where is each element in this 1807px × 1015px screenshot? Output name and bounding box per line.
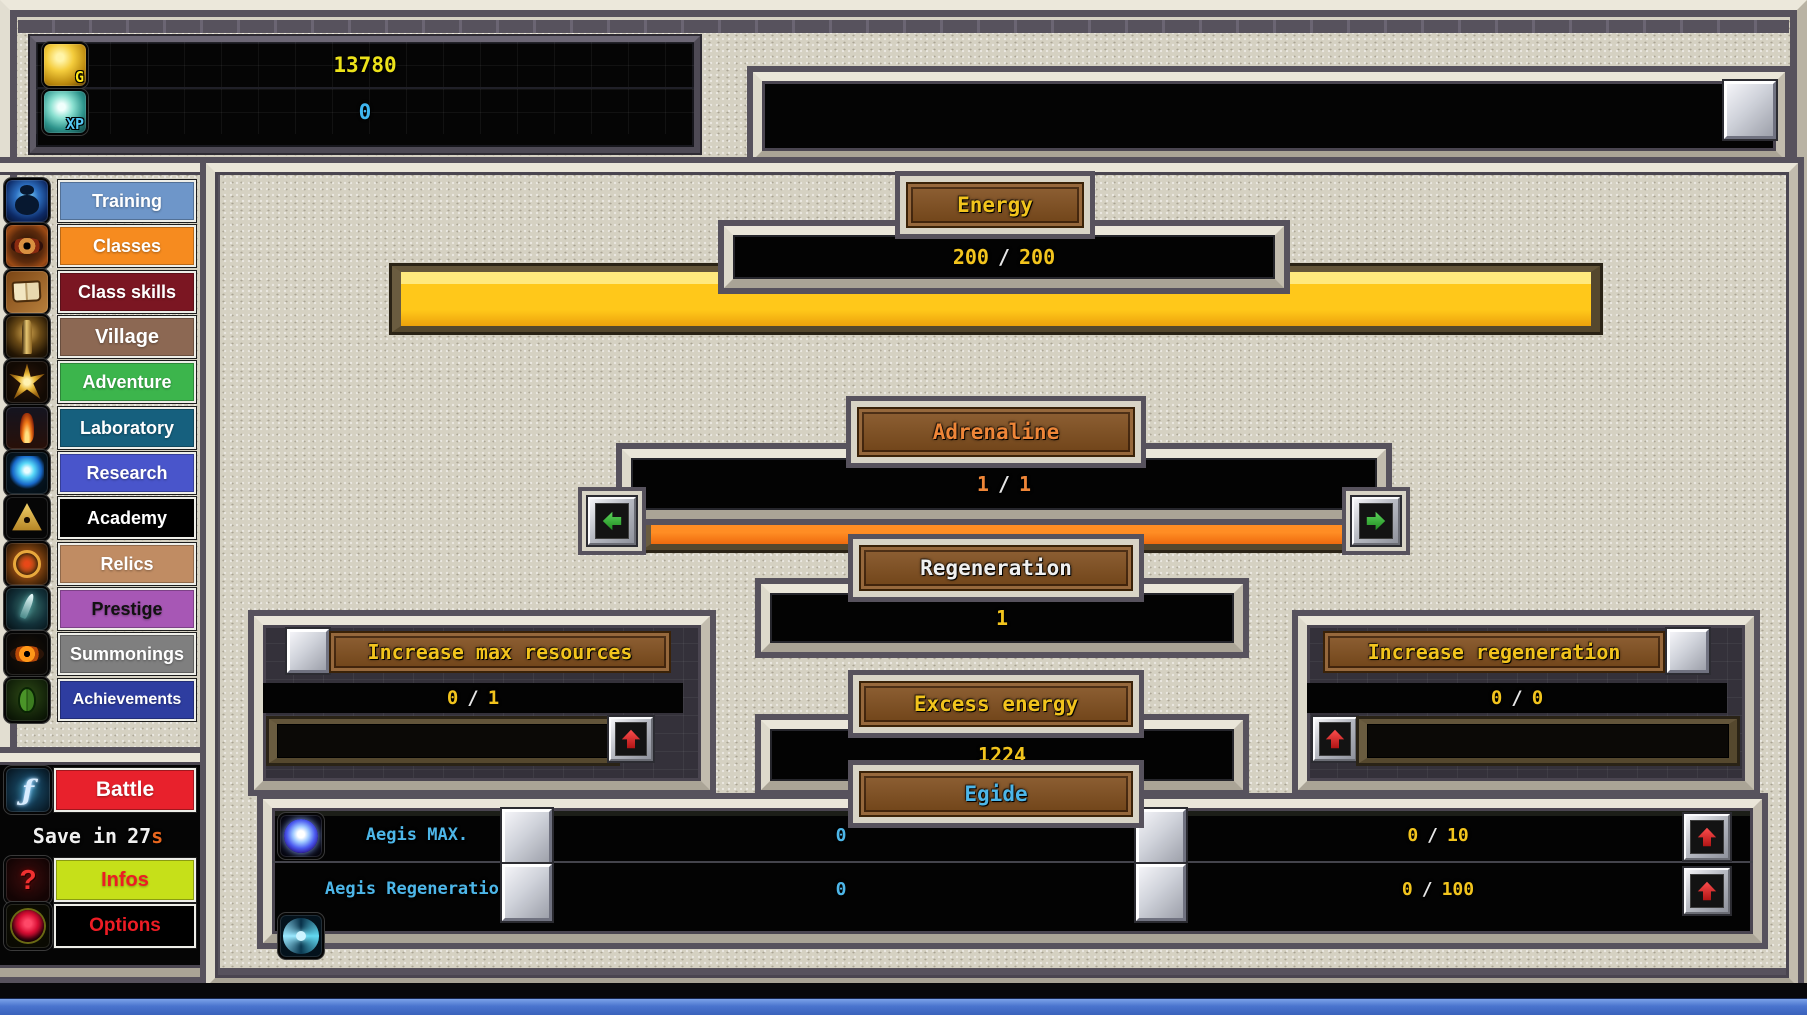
- aegis-regen-prog-max: 100: [1442, 879, 1475, 900]
- academy-button[interactable]: Academy: [58, 497, 196, 539]
- increase-regen-separator: /: [1511, 687, 1522, 709]
- laboratory-icon: [4, 405, 50, 451]
- regeneration-value-panel: 1: [761, 584, 1243, 652]
- increase-regen-header: Increase regeneration: [1323, 631, 1665, 673]
- summonings-icon: [4, 631, 50, 677]
- resources-panel: G 13780 XP 0: [30, 36, 700, 153]
- sidebar-item-summonings[interactable]: Summonings: [4, 632, 196, 676]
- aegis-regeneration-upgrade-button[interactable]: [1684, 868, 1730, 914]
- regeneration-header: Regeneration: [859, 545, 1133, 591]
- excess-energy-header: Excess energy: [859, 681, 1133, 727]
- aegis-max-prog-max: 10: [1447, 825, 1469, 846]
- green-left-arrow-icon: [602, 511, 622, 531]
- infos-button[interactable]: Infos: [54, 858, 196, 902]
- increase-max-buy-button[interactable]: [609, 717, 653, 761]
- increase-regeneration-panel: Increase regeneration 0/0: [1298, 616, 1754, 790]
- increase-max-header: Increase max resources: [329, 631, 671, 673]
- adrenaline-increase-button[interactable]: [1352, 497, 1400, 545]
- infos-icon: ?: [4, 856, 52, 904]
- red-up-arrow-icon: [1697, 881, 1717, 901]
- energy-separator: /: [998, 245, 1010, 269]
- adrenaline-title: Adrenaline: [933, 420, 1059, 444]
- classes-button[interactable]: Classes: [58, 225, 196, 267]
- classes-icon: [4, 223, 50, 269]
- relics-button[interactable]: Relics: [58, 543, 196, 585]
- red-up-arrow-icon: [1325, 729, 1345, 749]
- red-up-arrow-icon: [621, 729, 641, 749]
- infos-icon-wrap: ?: [4, 856, 52, 904]
- increase-regen-title: Increase regeneration: [1368, 640, 1621, 664]
- increase-max-toggle-button[interactable]: [287, 629, 329, 673]
- aegis-max-progress-cell: 0/10: [1182, 808, 1694, 862]
- aegis-max-icon: [278, 813, 324, 859]
- red-up-arrow-icon: [1697, 827, 1717, 847]
- sidebar-item-class-skills[interactable]: Class skills: [4, 270, 196, 314]
- save-timer-prefix: Save in: [33, 824, 117, 848]
- sidebar-item-village[interactable]: Village: [4, 315, 196, 359]
- egide-header: Egide: [859, 771, 1133, 817]
- increase-regen-value-row: 0/0: [1307, 683, 1727, 713]
- aegis-regen-prog-current: 0: [1402, 879, 1413, 900]
- sidebar-item-academy[interactable]: Academy: [4, 496, 196, 540]
- aegis-max-prog-separator: /: [1427, 825, 1438, 846]
- battle-button[interactable]: Battle: [54, 768, 196, 812]
- gold-row: G 13780: [36, 42, 694, 87]
- aegis-regeneration-toggle-block[interactable]: [502, 864, 552, 921]
- save-timer-seconds: 27: [127, 824, 151, 848]
- top-bar-scroll-thumb[interactable]: [1724, 81, 1776, 139]
- aegis-regeneration-icon: [278, 913, 324, 959]
- energy-title: Energy: [957, 193, 1033, 217]
- aegis-max-toggle-block-2[interactable]: [1136, 809, 1186, 866]
- game-screen: G 13780 XP 0 Training Classes Class skil…: [0, 0, 1807, 1015]
- aegis-regeneration-progress-cell: 0/100: [1182, 862, 1694, 916]
- class-skills-button[interactable]: Class skills: [58, 271, 196, 313]
- adventure-button[interactable]: Adventure: [58, 361, 196, 403]
- top-brick-border: [18, 20, 1789, 33]
- aegis-max-label: Aegis MAX.: [322, 808, 512, 862]
- green-right-arrow-icon: [1366, 511, 1386, 531]
- bottom-blue-bar: [0, 998, 1807, 1015]
- aegis-regeneration-toggle-block-2[interactable]: [1136, 864, 1186, 921]
- save-timer: Save in27s: [0, 822, 196, 850]
- adrenaline-current: 1: [977, 472, 989, 496]
- sidebar-item-adventure[interactable]: Adventure: [4, 360, 196, 404]
- regeneration-value: 1: [996, 606, 1008, 630]
- options-button[interactable]: Options: [54, 904, 196, 948]
- regeneration-title: Regeneration: [920, 556, 1072, 580]
- excess-energy-title: Excess energy: [914, 692, 1078, 716]
- infos-icon-glyph: ?: [6, 858, 50, 902]
- energy-header: Energy: [906, 182, 1084, 228]
- xp-row: XP 0: [36, 89, 694, 134]
- sidebar-item-research[interactable]: Research: [4, 451, 196, 495]
- increase-regen-current: 0: [1491, 687, 1502, 709]
- energy-value-panel: 200/200: [724, 226, 1284, 288]
- adrenaline-max: 1: [1019, 472, 1031, 496]
- academy-icon: [4, 495, 50, 541]
- increase-regen-toggle-button[interactable]: [1667, 629, 1709, 673]
- gold-value: 13780: [36, 42, 694, 87]
- adrenaline-header: Adrenaline: [857, 407, 1135, 457]
- options-icon: [4, 902, 52, 950]
- village-icon: [4, 314, 50, 360]
- adrenaline-value-panel: 1/1: [622, 449, 1386, 519]
- increase-regen-max: 0: [1532, 687, 1543, 709]
- increase-max-progress-bar: [269, 719, 617, 763]
- aegis-regeneration-label: Aegis Regeneration: [322, 862, 512, 916]
- aegis-regeneration-value: 0: [836, 879, 847, 900]
- increase-max-max: 1: [488, 687, 499, 709]
- research-button[interactable]: Research: [58, 452, 196, 494]
- adrenaline-separator: /: [998, 472, 1010, 496]
- egide-title: Egide: [964, 782, 1027, 806]
- aegis-max-prog-current: 0: [1407, 825, 1418, 846]
- increase-max-title: Increase max resources: [368, 640, 633, 664]
- laboratory-button[interactable]: Laboratory: [58, 407, 196, 449]
- aegis-regen-prog-separator: /: [1422, 879, 1433, 900]
- excess-energy-value: 1224: [978, 743, 1026, 767]
- egide-table: Aegis MAX. 0 0/10 Aegis Regeneration 0 0…: [263, 799, 1762, 943]
- adrenaline-decrease-button[interactable]: [588, 497, 636, 545]
- class-skills-icon: [4, 269, 50, 315]
- energy-current: 200: [953, 245, 989, 269]
- village-button[interactable]: Village: [58, 316, 196, 358]
- prestige-button[interactable]: Prestige: [58, 588, 196, 630]
- adventure-icon: [4, 359, 50, 405]
- increase-max-separator: /: [467, 687, 478, 709]
- energy-max: 200: [1019, 245, 1055, 269]
- research-icon: [4, 450, 50, 496]
- battle-icon: ƒ: [4, 766, 52, 814]
- top-progress-bar: [753, 72, 1785, 160]
- achievements-button[interactable]: Achievements: [58, 679, 196, 721]
- increase-max-value-row: 0/1: [263, 683, 683, 713]
- increase-regen-progress-bar: [1359, 719, 1737, 763]
- aegis-regeneration-value-cell: 0: [548, 862, 1134, 916]
- options-icon-wrap: [4, 902, 52, 950]
- save-timer-suffix: s: [151, 824, 163, 848]
- xp-value: 0: [36, 89, 694, 134]
- increase-regen-buy-button[interactable]: [1313, 717, 1357, 761]
- battle-icon-glyph: ƒ: [6, 768, 50, 812]
- battle-icon-wrap: ƒ: [4, 766, 52, 814]
- achievements-icon: [4, 677, 50, 723]
- aegis-max-value: 0: [836, 825, 847, 846]
- sidebar-item-relics[interactable]: Relics: [4, 542, 196, 586]
- sidebar-item-training[interactable]: Training: [4, 179, 196, 223]
- increase-max-current: 0: [447, 687, 458, 709]
- sidebar-item-achievements[interactable]: Achievements: [4, 678, 196, 722]
- sidebar-item-laboratory[interactable]: Laboratory: [4, 406, 196, 450]
- prestige-icon: [4, 586, 50, 632]
- aegis-max-toggle-block[interactable]: [502, 809, 552, 866]
- bottom-black-bar: [0, 983, 1807, 998]
- sidebar-item-prestige[interactable]: Prestige: [4, 587, 196, 631]
- training-button[interactable]: Training: [58, 180, 196, 222]
- aegis-max-upgrade-button[interactable]: [1684, 814, 1730, 860]
- increase-max-resources-panel: Increase max resources 0/1: [254, 616, 710, 790]
- sidebar-item-classes[interactable]: Classes: [4, 224, 196, 268]
- training-icon: [4, 178, 50, 224]
- summonings-button[interactable]: Summonings: [58, 633, 196, 675]
- relics-icon: [4, 541, 50, 587]
